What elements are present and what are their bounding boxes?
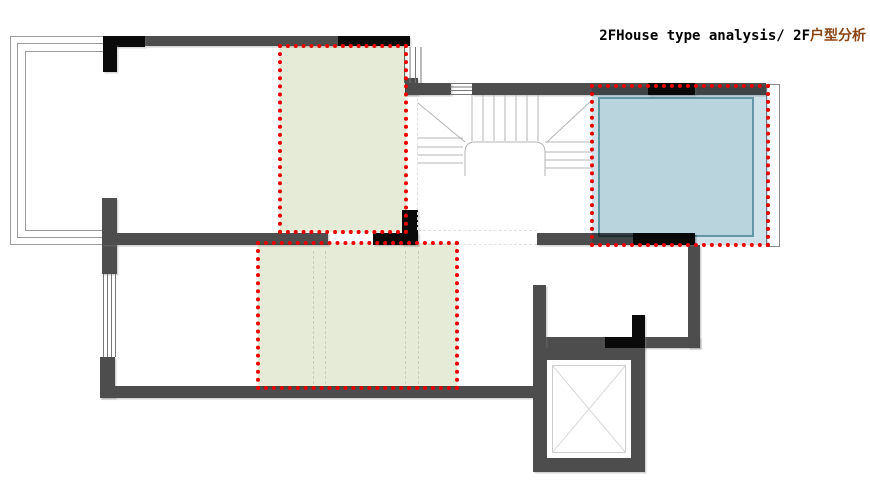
column-lobby-horizontal — [605, 337, 645, 348]
elevator-cross — [552, 365, 626, 453]
annotation-border-lower-green — [256, 241, 459, 390]
terrace-railing-line — [25, 51, 103, 231]
dashed-guide-line — [418, 230, 537, 231]
window-left — [103, 274, 116, 357]
page-title-zh: 户型分析 — [810, 28, 866, 44]
floor-plan-slide: 2FHouse type analysis/ 2F户型分析 — [0, 0, 870, 480]
staircase-drawing — [415, 94, 595, 180]
wall-corridor-left — [533, 285, 546, 348]
wall-right-vertical — [688, 245, 700, 348]
column-top-left-leg — [103, 44, 117, 72]
staircase — [415, 94, 595, 180]
page-title: 2FHouse type analysis/ 2F户型分析 — [599, 25, 866, 45]
dashed-guide-line — [417, 98, 418, 230]
page-title-en: 2FHouse type analysis/ 2F — [599, 28, 810, 44]
annotation-border-upper-green — [278, 44, 408, 234]
annotation-border-blue — [590, 84, 770, 247]
